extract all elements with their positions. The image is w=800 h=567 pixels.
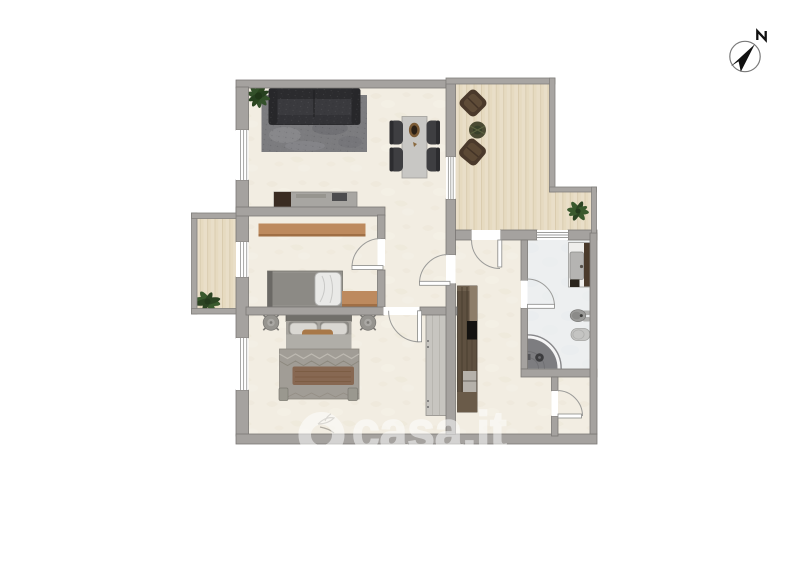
svg-text:casa.it: casa.it [352, 400, 507, 460]
